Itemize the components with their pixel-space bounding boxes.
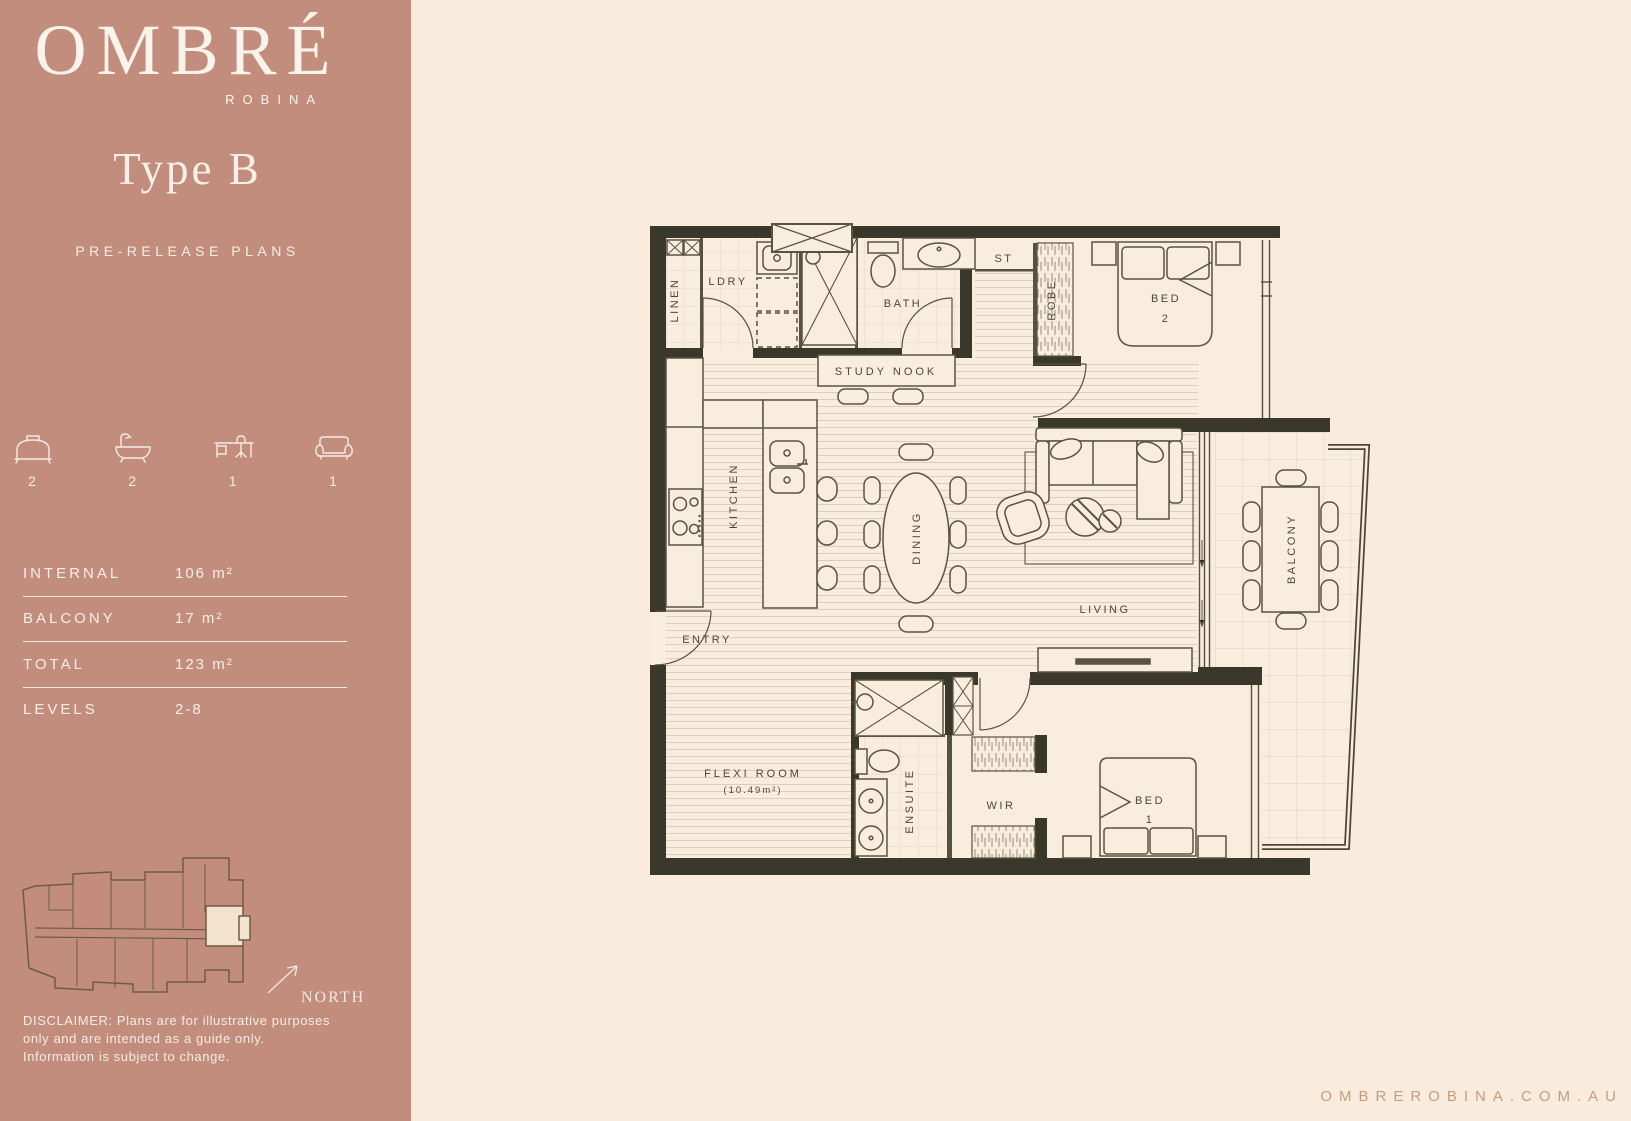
feature-bathrooms: 2: [111, 430, 155, 489]
bathrooms-count: 2: [111, 473, 155, 489]
services-shaft: [772, 224, 852, 252]
stat-value: 123 m²: [175, 656, 234, 673]
stat-value: 17 m²: [175, 610, 223, 627]
label-entry: ENTRY: [682, 634, 732, 646]
feature-study: 1: [212, 430, 256, 489]
label-robe: ROBE: [1046, 279, 1058, 320]
brand-logo: OMBRÉ: [0, 14, 375, 86]
label-dining: DINING: [911, 511, 923, 565]
label-kitchen: KITCHEN: [728, 463, 740, 529]
label-bed2: BED: [1151, 293, 1181, 305]
label-flexi-area: (10.49m²): [723, 785, 782, 796]
wir-wardrobe: [972, 737, 1035, 771]
stat-value: 106 m²: [175, 565, 234, 582]
north-arrow-icon: [268, 966, 297, 993]
sofa-icon: [312, 430, 356, 464]
label-bath: BATH: [884, 298, 923, 310]
living-count: 1: [312, 473, 356, 489]
bedrooms-count: 2: [11, 473, 55, 489]
label-linen: LINEN: [669, 278, 681, 323]
cooktop: [669, 489, 702, 545]
feature-living: 1: [312, 430, 356, 489]
disclaimer-line: DISCLAIMER: Plans are for illustrative p…: [23, 1012, 330, 1030]
page: OMBRÉ ROBINA Type B PRE-RELEASE PLANS 2: [0, 0, 1631, 1121]
label-wir: WIR: [987, 800, 1016, 812]
plan-canvas: LINEN LDRY BATH ST ROBE BED 2 STUDY NOOK…: [411, 0, 1631, 1121]
linen-closet: [667, 240, 700, 255]
website-url: OMBREROBINA.COM.AU: [1320, 1088, 1623, 1105]
stat-label: TOTAL: [23, 656, 175, 673]
stat-row-total: TOTAL 123 m²: [23, 642, 347, 688]
stat-row-levels: LEVELS 2-8: [23, 688, 347, 733]
stat-row-balcony: BALCONY 17 m²: [23, 597, 347, 643]
label-flexi-room: FLEXI ROOM: [704, 768, 802, 780]
disclaimer-line: Information is subject to change.: [23, 1048, 330, 1066]
highlighted-unit: [206, 906, 243, 946]
stat-row-internal: INTERNAL 106 m²: [23, 551, 347, 597]
disclaimer-line: only and are intended as a guide only.: [23, 1030, 330, 1048]
north-label: NORTH: [301, 989, 365, 1006]
stats-table: INTERNAL 106 m² BALCONY 17 m² TOTAL 123 …: [23, 551, 347, 732]
hall-cupboard: [953, 677, 973, 735]
label-balcony: BALCONY: [1286, 514, 1298, 584]
stat-value: 2-8: [175, 701, 203, 718]
shower: [802, 238, 857, 345]
bath-icon: [111, 430, 155, 464]
label-laundry: LDRY: [708, 276, 747, 288]
study-count: 1: [212, 473, 256, 489]
north-indicator: NORTH: [255, 955, 385, 1015]
feature-icons-row: 2 2 1: [11, 430, 356, 489]
feature-bedrooms: 2: [11, 430, 55, 489]
bed-icon: [11, 430, 55, 464]
stat-label: INTERNAL: [23, 565, 175, 582]
label-ensuite: ENSUITE: [904, 768, 916, 833]
floor-plan: LINEN LDRY BATH ST ROBE BED 2 STUDY NOOK…: [600, 190, 1440, 910]
building-key-plan: [15, 850, 255, 1010]
sidebar: OMBRÉ ROBINA Type B PRE-RELEASE PLANS 2: [0, 0, 411, 1121]
status-text: PRE-RELEASE PLANS: [0, 243, 375, 259]
plan-type-title: Type B: [0, 143, 375, 195]
brand: OMBRÉ ROBINA: [0, 14, 375, 107]
desk-icon: [212, 430, 256, 464]
wir-wardrobe: [972, 826, 1035, 858]
disclaimer: DISCLAIMER: Plans are for illustrative p…: [23, 1012, 330, 1066]
label-study-nook: STUDY NOOK: [835, 366, 938, 378]
label-storage: ST: [994, 253, 1013, 265]
laundry-fixtures: [757, 242, 797, 347]
stat-label: BALCONY: [23, 610, 175, 627]
label-bed2-number: 2: [1162, 313, 1171, 325]
stat-label: LEVELS: [23, 701, 175, 718]
brand-sublogo: ROBINA: [0, 92, 375, 107]
label-bed1-number: 1: [1146, 814, 1155, 826]
label-living: LIVING: [1079, 604, 1130, 616]
label-bed1: BED: [1135, 795, 1165, 807]
